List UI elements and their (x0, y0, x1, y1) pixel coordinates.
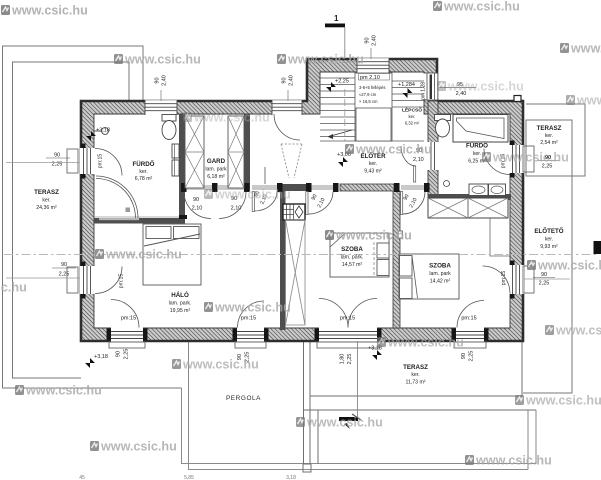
svg-text:lam. park.: lam. park. (169, 301, 192, 307)
svg-text:2,54 m²: 2,54 m² (540, 140, 558, 146)
svg-text:45: 45 (79, 475, 85, 480)
svg-text:90: 90 (282, 77, 288, 83)
svg-text:× 16,5 cm: × 16,5 cm (359, 99, 378, 104)
svg-text:2,25: 2,25 (539, 281, 550, 287)
svg-text:90: 90 (116, 351, 122, 357)
svg-text:ker.: ker. (42, 198, 50, 204)
svg-text:lam. park: lam. park (429, 271, 451, 277)
svg-text:9,93 m²: 9,93 m² (540, 244, 558, 250)
svg-text:14,42 m²: 14,42 m² (430, 279, 451, 285)
svg-text:+2,25: +2,25 (335, 79, 349, 85)
svg-text:2,25: 2,25 (124, 349, 130, 360)
svg-text:pm:15: pm:15 (119, 274, 125, 289)
svg-text:ELŐTETŐ: ELŐTETŐ (534, 228, 563, 235)
svg-text:6,78 m²: 6,78 m² (135, 176, 153, 182)
svg-text:9,43 m²: 9,43 m² (364, 169, 382, 175)
svg-text:ker.: ker. (411, 372, 419, 378)
svg-text:FÜRDŐ: FÜRDŐ (133, 161, 155, 168)
svg-text:2,25: 2,25 (347, 354, 353, 365)
svg-text:90: 90 (193, 197, 199, 203)
svg-text:pm:15: pm:15 (121, 316, 136, 322)
svg-text:ker.: ker. (409, 114, 416, 119)
svg-text:90: 90 (155, 77, 161, 83)
svg-text:14,57 m²: 14,57 m² (342, 262, 363, 268)
svg-text:1,80: 1,80 (340, 354, 346, 365)
svg-text:2,10: 2,10 (192, 206, 203, 212)
svg-text:2,40: 2,40 (372, 35, 378, 46)
svg-text:2,25: 2,25 (59, 272, 70, 278)
svg-text:pm:15: pm:15 (340, 316, 355, 322)
svg-text:ker.: ker. (369, 161, 377, 167)
svg-text:2,40: 2,40 (162, 75, 168, 86)
svg-text:90: 90 (365, 37, 371, 43)
svg-text:3,18: 3,18 (286, 475, 296, 480)
svg-text:SZOBA: SZOBA (429, 263, 451, 270)
svg-text:≈27,9 cm: ≈27,9 cm (359, 92, 377, 97)
svg-text:90: 90 (541, 272, 547, 278)
svg-text:TERASZ: TERASZ (403, 364, 428, 371)
svg-text:HÁLÓ: HÁLÓ (171, 291, 189, 299)
svg-text:GARD: GARD (207, 158, 226, 165)
svg-text:2,10: 2,10 (231, 206, 242, 212)
svg-text:ker.: ker. (473, 151, 481, 157)
svg-text:19,95 m²: 19,95 m² (170, 308, 191, 314)
svg-text:11,73 m²: 11,73 m² (405, 380, 425, 386)
svg-text:pm 1,28: pm 1,28 (421, 82, 427, 100)
svg-text:TERASZ: TERASZ (34, 189, 59, 196)
svg-text:2,10: 2,10 (413, 157, 424, 163)
svg-text:90: 90 (54, 153, 60, 159)
svg-text:pm:15: pm:15 (501, 271, 507, 286)
svg-text:lam. párk.: lam. párk. (341, 255, 364, 261)
svg-text:ker.: ker. (545, 237, 553, 243)
svg-text:5,85: 5,85 (184, 475, 194, 480)
svg-text:+3,18: +3,18 (96, 128, 110, 134)
svg-text:pm:15: pm:15 (461, 316, 476, 322)
svg-text:pm:15: pm:15 (241, 316, 256, 322)
svg-text:PERGOLA: PERGOLA (226, 395, 261, 402)
svg-text:90: 90 (461, 353, 467, 359)
svg-text:6,18 m²: 6,18 m² (207, 174, 225, 180)
svg-text:FÜRDŐ: FÜRDŐ (466, 143, 488, 150)
svg-text:6,32 m²: 6,32 m² (405, 121, 420, 126)
svg-text:+3,18: +3,18 (94, 354, 108, 360)
svg-text:ker.: ker. (545, 133, 553, 139)
svg-text:SZOBA: SZOBA (341, 246, 363, 253)
svg-text:lam. park: lam. park (205, 167, 227, 173)
svg-text:3-6+5 fellépés: 3-6+5 fellépés (359, 85, 385, 90)
svg-text:pm:15: pm:15 (98, 154, 104, 169)
svg-text:1: 1 (334, 14, 339, 23)
svg-text:24,36 m²: 24,36 m² (36, 205, 57, 211)
svg-text:ker.: ker. (139, 169, 147, 175)
svg-text:2,25: 2,25 (469, 351, 475, 362)
svg-text:2,40: 2,40 (289, 75, 295, 86)
svg-text:TERASZ: TERASZ (537, 125, 562, 132)
svg-text:90: 90 (61, 262, 67, 268)
svg-text:+1,284: +1,284 (398, 82, 415, 88)
